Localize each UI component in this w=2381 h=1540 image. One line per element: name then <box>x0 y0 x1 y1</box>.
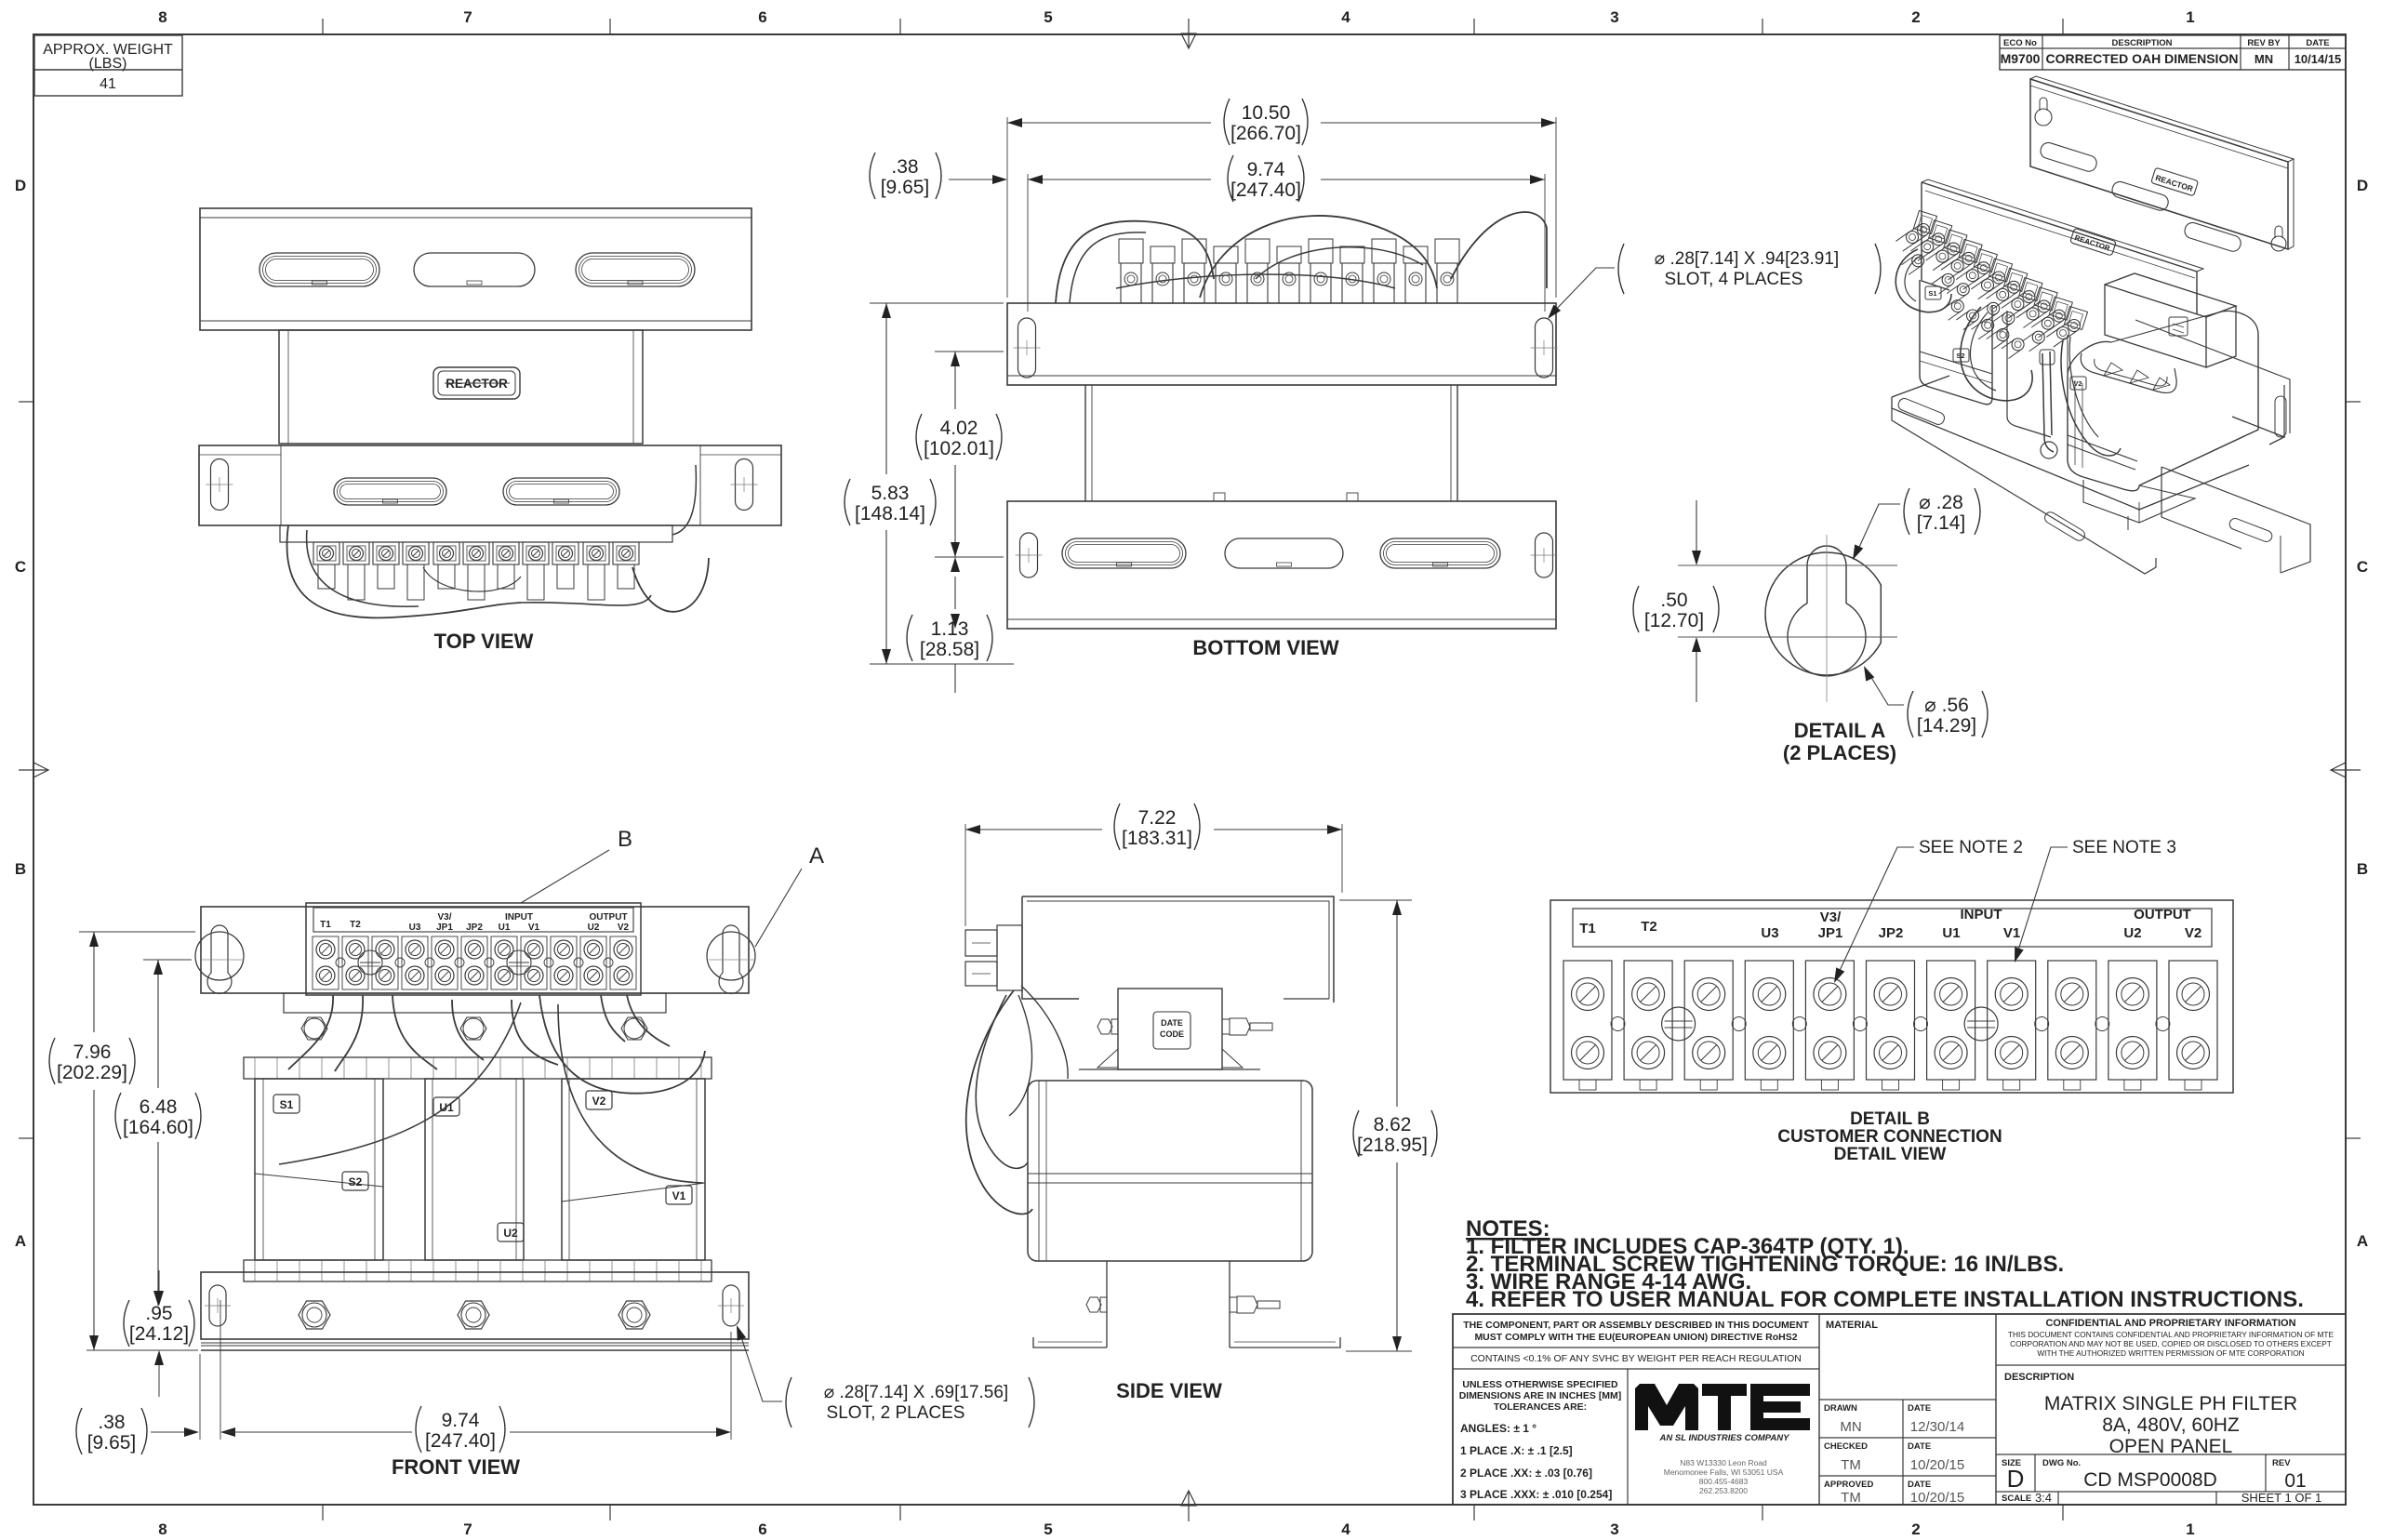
svg-text:2: 2 <box>1911 1520 1920 1538</box>
svg-text:2: 2 <box>1911 8 1920 26</box>
svg-text:U2: U2 <box>503 1227 518 1240</box>
svg-text:S1: S1 <box>1928 289 1936 298</box>
svg-text:[266.70]: [266.70] <box>1230 123 1301 144</box>
svg-text:M9700: M9700 <box>2001 51 2041 66</box>
svg-text:JP1: JP1 <box>1818 925 1843 941</box>
svg-text:SEE NOTE 2: SEE NOTE 2 <box>1919 838 2023 857</box>
svg-text:UNLESS OTHERWISE SPECIFIED: UNLESS OTHERWISE SPECIFIED <box>1462 1379 1618 1390</box>
svg-text:APPROVED: APPROVED <box>1824 1480 1873 1490</box>
svg-text:3 PLACE .XXX: ± .010 [0.254]: 3 PLACE .XXX: ± .010 [0.254] <box>1460 1488 1612 1501</box>
svg-text:CHECKED: CHECKED <box>1824 1441 1868 1452</box>
svg-text:[9.65]: [9.65] <box>881 177 930 198</box>
svg-text:OUTPUT: OUTPUT <box>2134 907 2191 923</box>
svg-text:CORPORATION AND MAY NOT BE USE: CORPORATION AND MAY NOT BE USED, COPIED … <box>2010 1339 2332 1348</box>
svg-text:10/20/15: 10/20/15 <box>1910 1457 1964 1473</box>
svg-text:⌀ .28: ⌀ .28 <box>1919 492 1963 513</box>
svg-text:DWG No.: DWG No. <box>2042 1458 2081 1468</box>
svg-text:C: C <box>15 558 26 576</box>
svg-text:3: 3 <box>1610 1520 1618 1538</box>
svg-text:MATRIX SINGLE PH FILTER: MATRIX SINGLE PH FILTER <box>2044 1393 2297 1414</box>
svg-text:6.48: 6.48 <box>140 1096 178 1118</box>
svg-text:SCALE: SCALE <box>2002 1494 2031 1504</box>
svg-text:[9.65]: [9.65] <box>87 1432 137 1454</box>
svg-text:V2: V2 <box>618 923 630 933</box>
svg-text:CODE: CODE <box>1160 1029 1184 1039</box>
svg-text:5: 5 <box>1044 1520 1052 1538</box>
svg-text:JP2: JP2 <box>1879 925 1904 941</box>
svg-text:ECO No: ECO No <box>2003 38 2037 48</box>
svg-text:A: A <box>809 843 824 869</box>
svg-text:AN SL INDUSTRIES COMPANY: AN SL INDUSTRIES COMPANY <box>1659 1433 1791 1443</box>
svg-text:[14.29]: [14.29] <box>1917 715 1976 737</box>
svg-text:FRONT VIEW: FRONT VIEW <box>392 1455 520 1479</box>
svg-text:TOP VIEW: TOP VIEW <box>434 630 534 653</box>
svg-text:SLOT, 4 PLACES: SLOT, 4 PLACES <box>1665 270 1803 289</box>
svg-text:MN: MN <box>2255 52 2273 66</box>
svg-text:3: 3 <box>1610 8 1618 26</box>
svg-text:1: 1 <box>2186 1520 2194 1538</box>
svg-text:8: 8 <box>158 8 166 26</box>
svg-text:CUSTOMER CONNECTION: CUSTOMER CONNECTION <box>1777 1127 2002 1147</box>
svg-text:[218.95]: [218.95] <box>1357 1135 1428 1156</box>
svg-text:ANGLES: ± 1 °: ANGLES: ± 1 ° <box>1460 1422 1536 1435</box>
svg-text:[7.14]: [7.14] <box>1917 512 1966 534</box>
svg-text:OUTPUT: OUTPUT <box>589 912 627 923</box>
svg-text:CD MSP0008D: CD MSP0008D <box>2083 1469 2217 1491</box>
svg-text:10.50: 10.50 <box>1242 102 1291 124</box>
svg-text:A: A <box>15 1232 26 1250</box>
svg-text:SHEET 1 OF 1: SHEET 1 OF 1 <box>2241 1491 2321 1505</box>
svg-text:⌀ .28[7.14] X .69[17.56]: ⌀ .28[7.14] X .69[17.56] <box>824 1383 1008 1402</box>
svg-text:U3: U3 <box>409 923 421 933</box>
svg-text:DESCRIPTION: DESCRIPTION <box>2112 38 2173 48</box>
svg-text:B: B <box>618 827 632 852</box>
svg-text:REV: REV <box>2272 1458 2291 1468</box>
svg-text:7: 7 <box>463 8 472 26</box>
svg-text:1.13: 1.13 <box>931 618 969 640</box>
svg-text:THE COMPONENT, PART OR ASSEMBL: THE COMPONENT, PART OR ASSEMBLY DESCRIBE… <box>1463 1320 1809 1331</box>
svg-text:DETAIL B: DETAIL B <box>1850 1109 1930 1129</box>
svg-text:DATE: DATE <box>1908 1480 1931 1490</box>
svg-text:9.74: 9.74 <box>1247 159 1285 180</box>
svg-text:8A, 480V, 60HZ: 8A, 480V, 60HZ <box>2102 1414 2240 1436</box>
svg-text:U2: U2 <box>2123 925 2141 941</box>
svg-text:01: 01 <box>2284 1470 2306 1492</box>
svg-text:⌀ .28[7.14] X .94[23.91]: ⌀ .28[7.14] X .94[23.91] <box>1655 249 1839 269</box>
svg-text:MATERIAL: MATERIAL <box>1826 1320 1878 1331</box>
svg-text:V1: V1 <box>672 1189 686 1202</box>
svg-text:(2 PLACES): (2 PLACES) <box>1783 741 1896 764</box>
svg-text:[148.14]: [148.14] <box>855 503 925 524</box>
svg-text:T1: T1 <box>1579 921 1596 936</box>
svg-text:CORRECTED OAH DIMENSION: CORRECTED OAH DIMENSION <box>2046 51 2239 66</box>
svg-text:[247.40]: [247.40] <box>425 1430 496 1452</box>
svg-text:1: 1 <box>2186 8 2194 26</box>
svg-text:[202.29]: [202.29] <box>57 1062 127 1083</box>
svg-text:JP2: JP2 <box>466 923 483 933</box>
svg-text:A: A <box>2357 1232 2368 1250</box>
svg-text:JP1: JP1 <box>436 923 453 933</box>
svg-text:8: 8 <box>158 1520 166 1538</box>
svg-text:.50: .50 <box>1660 590 1687 611</box>
svg-text:12/30/14: 12/30/14 <box>1910 1419 1964 1435</box>
svg-text:SLOT, 2 PLACES: SLOT, 2 PLACES <box>827 1403 965 1423</box>
svg-text:C: C <box>2357 558 2368 576</box>
svg-text:INPUT: INPUT <box>505 912 533 923</box>
svg-text:CONFIDENTIAL AND PROPRIETARY I: CONFIDENTIAL AND PROPRIETARY INFORMATION <box>2045 1318 2295 1329</box>
svg-text:T2: T2 <box>1641 919 1657 935</box>
svg-text:DATE: DATE <box>1908 1441 1931 1452</box>
svg-text:WITH THE AUTHORIZED WRITTEN PE: WITH THE AUTHORIZED WRITTEN PERMISSION O… <box>2037 1348 2304 1358</box>
svg-text:TM: TM <box>1841 1457 1861 1473</box>
svg-text:SEE NOTE 3: SEE NOTE 3 <box>2072 838 2176 857</box>
svg-text:[12.70]: [12.70] <box>1644 610 1704 631</box>
svg-text:V3/: V3/ <box>1820 909 1842 925</box>
svg-text:DIMENSIONS ARE IN INCHES [MM]: DIMENSIONS ARE IN INCHES [MM] <box>1459 1390 1622 1401</box>
svg-text:DATE: DATE <box>2306 38 2329 48</box>
svg-text:10/20/15: 10/20/15 <box>1910 1490 1964 1506</box>
svg-text:MN: MN <box>1840 1419 1861 1435</box>
svg-text:S2: S2 <box>349 1175 363 1188</box>
svg-text:D: D <box>2357 177 2368 194</box>
svg-text:Menomonee Falls, WI 53051 USA: Menomonee Falls, WI 53051 USA <box>1664 1467 1784 1477</box>
svg-text:TM: TM <box>1841 1490 1861 1506</box>
svg-text:7.96: 7.96 <box>73 1042 112 1063</box>
svg-text:41: 41 <box>100 76 116 92</box>
svg-text:DESCRIPTION: DESCRIPTION <box>2004 1372 2074 1383</box>
svg-text:REACTOR: REACTOR <box>446 377 508 391</box>
svg-text:⌀ .56: ⌀ .56 <box>1924 695 1969 716</box>
svg-text:SIDE VIEW: SIDE VIEW <box>1116 1379 1222 1402</box>
svg-text:U2: U2 <box>588 923 600 933</box>
svg-text:8.62: 8.62 <box>1374 1114 1412 1135</box>
svg-text:U1: U1 <box>439 1101 454 1114</box>
svg-text:DATE: DATE <box>1908 1403 1931 1414</box>
svg-text:[28.58]: [28.58] <box>920 639 979 660</box>
svg-text:CONTAINS <0.1% OF ANY SVHC BY: CONTAINS <0.1% OF ANY SVHC BY WEIGHT PER… <box>1470 1353 1802 1364</box>
svg-text:5.83: 5.83 <box>871 483 910 504</box>
svg-text:6: 6 <box>758 1520 766 1538</box>
svg-text:DETAIL A: DETAIL A <box>1794 719 1886 742</box>
svg-text:800.455-4683: 800.455-4683 <box>1699 1477 1749 1486</box>
svg-text:INPUT: INPUT <box>1961 907 2002 923</box>
svg-text:REV BY: REV BY <box>2247 38 2281 48</box>
svg-text:[102.01]: [102.01] <box>924 438 994 459</box>
svg-text:4.02: 4.02 <box>940 418 978 439</box>
svg-text:[164.60]: [164.60] <box>123 1117 193 1138</box>
svg-text:D: D <box>2007 1465 2025 1493</box>
svg-text:7: 7 <box>463 1520 472 1538</box>
svg-text:TOLERANCES ARE:: TOLERANCES ARE: <box>1494 1401 1587 1413</box>
svg-text:B: B <box>2357 860 2368 878</box>
svg-text:6: 6 <box>758 8 766 26</box>
svg-text:BOTTOM VIEW: BOTTOM VIEW <box>1192 636 1338 659</box>
svg-text:T1: T1 <box>320 920 331 930</box>
svg-text:U1: U1 <box>1942 925 1960 941</box>
svg-text:7.22: 7.22 <box>1138 807 1177 829</box>
svg-text:MUST COMPLY WITH THE EU(EUROPE: MUST COMPLY WITH THE EU(EUROPEAN UNION) … <box>1474 1332 1797 1343</box>
svg-text:.38: .38 <box>891 156 918 178</box>
svg-text:[247.40]: [247.40] <box>1230 179 1301 201</box>
svg-text:.95: .95 <box>145 1303 172 1324</box>
svg-text:U3: U3 <box>1761 925 1778 941</box>
svg-text:3:4: 3:4 <box>2035 1491 2052 1505</box>
svg-text:V2: V2 <box>2185 925 2201 941</box>
svg-text:THIS DOCUMENT CONTAINS CONFIDE: THIS DOCUMENT CONTAINS CONFIDENTIAL AND … <box>2008 1330 2334 1339</box>
svg-text:4: 4 <box>1341 1520 1350 1538</box>
svg-text:1 PLACE .X: ± .1 [2.5]: 1 PLACE .X: ± .1 [2.5] <box>1460 1444 1573 1457</box>
svg-text:B: B <box>15 860 26 878</box>
svg-text:V1: V1 <box>528 923 540 933</box>
svg-text:4: 4 <box>1341 8 1350 26</box>
svg-text:[24.12]: [24.12] <box>129 1323 189 1345</box>
svg-text:2 PLACE .XX: ± .03 [0.76]: 2 PLACE .XX: ± .03 [0.76] <box>1460 1467 1592 1480</box>
svg-text:S1: S1 <box>280 1098 294 1111</box>
svg-text:[183.31]: [183.31] <box>1122 828 1192 849</box>
svg-text:(LBS): (LBS) <box>89 56 127 72</box>
svg-text:5: 5 <box>1044 8 1052 26</box>
svg-text:DRAWN: DRAWN <box>1824 1403 1857 1414</box>
svg-text:DATE: DATE <box>1161 1018 1183 1028</box>
svg-text:U1: U1 <box>499 923 511 933</box>
svg-text:.38: .38 <box>98 1412 125 1433</box>
svg-text:DETAIL VIEW: DETAIL VIEW <box>1834 1145 1947 1164</box>
svg-text:V1: V1 <box>2003 925 2020 941</box>
svg-text:T2: T2 <box>350 920 361 930</box>
svg-text:10/14/15: 10/14/15 <box>2295 52 2342 66</box>
svg-text:262.253.8200: 262.253.8200 <box>1699 1486 1748 1495</box>
svg-text:D: D <box>15 177 26 194</box>
svg-text:9.74: 9.74 <box>442 1410 480 1431</box>
svg-text:N83 W13330 Leon Road: N83 W13330 Leon Road <box>1680 1458 1767 1467</box>
svg-text:V3/: V3/ <box>437 912 451 923</box>
svg-text:4. REFER TO USER MANUAL FOR C: 4. REFER TO USER MANUAL FOR COMPLETE INS… <box>1466 1287 2304 1312</box>
svg-text:V2: V2 <box>592 1095 606 1108</box>
